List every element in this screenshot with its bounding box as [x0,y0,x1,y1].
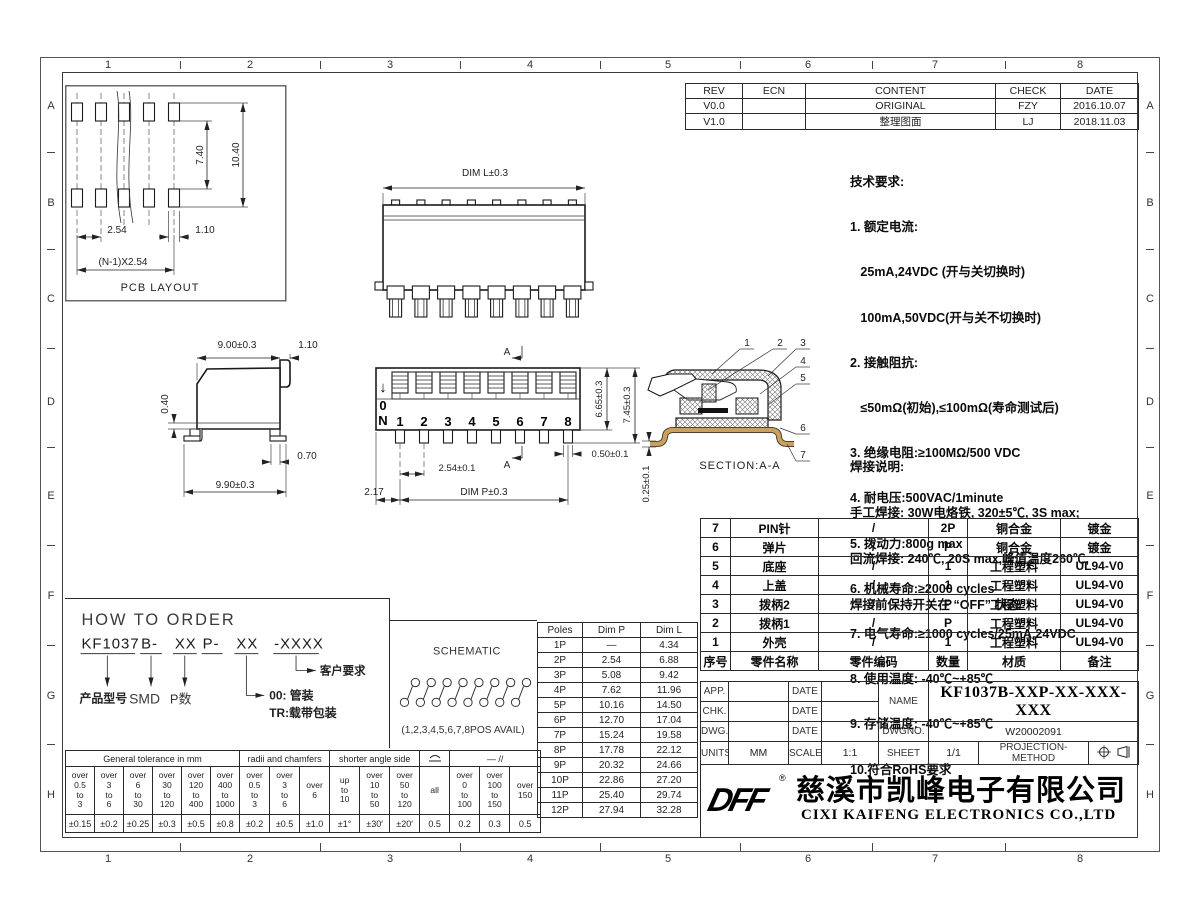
dim-7-45: 7.45±0.3 [622,387,633,424]
zone-row-left: B [44,197,58,209]
poles-cell: 9.42 [641,668,698,683]
table-row: 6弹片/P铜合金镀金 [701,538,1139,557]
front-pins [396,430,573,443]
rev-cell: V0.0 [686,99,743,114]
company-block: DFF ® 慈溪市凯峰电子有限公司 CIXI KAIFENG ELECTRONI… [700,765,1138,838]
how-to-order-title: HOW TO ORDER [81,611,235,629]
flatness-icon [428,753,442,762]
schematic-note: (1,2,3,4,5,6,7,8POS AVAIL) [401,725,524,736]
bom-cell: 3 [701,595,731,614]
zone-tick [320,61,321,69]
zone-row-left: A [44,100,58,112]
bom-cell: 工程塑料 [968,557,1061,576]
dim-9-90: 9.90±0.3 [216,480,255,491]
bom-cell: P [929,595,968,614]
dim-0-40: 0.40 [160,394,171,414]
poles-cell: 20.32 [583,758,641,773]
section-aa-view: 1 2 3 4 5 6 7 0.25±0.1 SECTION:A-A [640,332,860,518]
dim-l-label: DIM L±0.3 [462,168,508,179]
scale-label: SCALE [789,742,822,765]
tol-value: ±30′ [360,815,390,833]
date-label: DATE [789,702,822,722]
section-housing [648,370,781,432]
bom-header: 备注 [1061,652,1139,671]
rev-cell [743,99,806,114]
part-name-value: KF1037B-XXP-XX-XXX-XXX [929,682,1139,722]
schematic-title: SCHEMATIC [433,646,501,658]
zone-col-top: 7 [925,59,945,71]
bom-header: 零件名称 [731,652,819,671]
code-family: KF1037 [81,637,139,653]
tol-range: over 0.5 to 3 [240,767,270,815]
bom-cell: P [929,538,968,557]
bom-header: 序号 [701,652,731,671]
rev-cell: FZY [996,99,1061,114]
poles-header: Dim P [583,623,641,638]
rev-header: ECN [743,84,806,99]
bom-cell: 底座 [731,557,819,576]
poles-cell: 6P [538,713,583,728]
section-label: SECTION:A-A [699,460,780,472]
bom-cell: PIN针 [731,519,819,538]
chk-label: CHK. [701,702,729,722]
rev-header: REV [686,84,743,99]
zone-tick [1146,447,1154,448]
poles-cell: 10P [538,773,583,788]
zone-tick [1146,545,1154,546]
poles-cell: 8P [538,743,583,758]
bom-cell: 拨柄2 [731,595,819,614]
zone-tick [47,447,55,448]
tol-group-parallel: — // [450,751,541,767]
dwg-value [729,722,789,742]
table-row: 9P20.3224.66 [538,758,698,773]
bom-cell: / [819,576,929,595]
sheet-label: SHEET [879,742,929,765]
rev-cell: 整理图面 [806,114,996,130]
label-smd: SMD [129,690,160,706]
date-value [822,722,879,742]
tol-range: over 120 to 400 [182,767,211,815]
zone-col-bottom: 4 [520,853,540,865]
zone-row-right: D [1143,396,1157,408]
tol-value-row: ±0.15 ±0.2 ±0.25 ±0.3 ±0.5 ±0.8 ±0.2 ±0.… [66,815,541,833]
bom-cell: P [929,614,968,633]
dim-2-17: 2.17 [364,487,384,498]
pcb-layout-view: 7.40 10.40 2.54 1.10 (N-1)X2.54 PCB LAYO… [65,85,287,302]
zone-tick [180,843,181,851]
bom-cell: / [819,595,929,614]
zone-col-bottom: 1 [98,853,118,865]
rev-cell: 2016.10.07 [1061,99,1139,114]
svg-text:8: 8 [564,414,571,429]
engineering-drawing-sheet: 1 2 3 4 5 6 7 8 1 2 3 4 5 6 7 8 A B C D … [0,0,1200,910]
zone-col-top: 4 [520,59,540,71]
zone-tick [1005,843,1006,851]
poles-cell: 1P [538,638,583,653]
bom-cell: 1 [701,633,731,652]
bom-cell: 弹片 [731,538,819,557]
zone-row-right: E [1143,490,1157,502]
tech-req-line: 100mA,50VDC(开与关不切换时) [850,310,1142,327]
tech-req-line: 2. 接触阻抗: [850,355,1142,372]
bom-cell: 7 [701,519,731,538]
tol-value: ±0.2 [240,815,270,833]
poles-cell: 17.78 [583,743,641,758]
tol-range: over 50 to 120 [390,767,420,815]
tol-range: over 0 to 100 [450,767,480,815]
projection-symbol-cell [1089,742,1139,765]
bom-cell: 工程塑料 [968,595,1061,614]
rev-header: CHECK [996,84,1061,99]
table-row: 12P27.9432.28 [538,803,698,818]
callout-3: 3 [800,338,806,349]
poles-cell: 29.74 [641,788,698,803]
zone-tick [1005,61,1006,69]
table-row: 4P7.6211.96 [538,683,698,698]
zone-col-bottom: 5 [658,853,678,865]
zone-tick [47,744,55,745]
code-poles: XX [175,637,197,653]
dwgno-value: W20002091 [929,722,1139,742]
tol-value: 0.2 [450,815,480,833]
tech-req-title: 技术要求: [850,174,1142,191]
dim-n-pitch: (N-1)X2.54 [99,257,148,268]
rev-header: CONTENT [806,84,996,99]
svg-text:7: 7 [540,414,547,429]
zone-row-right: B [1143,197,1157,209]
zone-col-bottom: 2 [240,853,260,865]
svg-text:5: 5 [492,414,499,429]
zone-row-left: E [44,490,58,502]
table-row: 7P15.2419.58 [538,728,698,743]
poles-header: Poles [538,623,583,638]
section-mark-bottom: A [504,446,522,471]
tol-range: over 6 [300,767,330,815]
table-row: 7PIN针/2P铜合金镀金 [701,519,1139,538]
scale-value: 1:1 [822,742,879,765]
rear-view: DIM L±0.3 [365,162,640,330]
bom-cell: 工程塑料 [968,614,1061,633]
date-label: DATE [789,682,822,702]
bom-cell: UL94-V0 [1061,557,1139,576]
poles-cell: 2.54 [583,653,641,668]
zone-tick [1146,348,1154,349]
rev-cell [743,114,806,130]
zone-tick [47,348,55,349]
date-value [822,702,879,722]
callout-1: 1 [744,338,750,349]
tol-flatness-symbol-cell [420,751,450,767]
poles-cell: 12P [538,803,583,818]
bom-cell: 外壳 [731,633,819,652]
poles-cell: 7.62 [583,683,641,698]
bom-cell: 铜合金 [968,519,1061,538]
callout-6: 6 [800,423,806,434]
pcb-layout-label: PCB LAYOUT [121,282,200,294]
on-indicator: ↓ 0 N [378,379,387,428]
bom-header: 材质 [968,652,1061,671]
tol-value: 0.5 [510,815,541,833]
zone-tick [320,843,321,851]
zone-tick [872,61,873,69]
dim-0-70: 0.70 [297,451,317,462]
bom-cell: 拨柄1 [731,614,819,633]
table-row: 2拨柄1/P工程塑料UL94-V0 [701,614,1139,633]
bom-cell: 4 [701,576,731,595]
code-p: P- [203,637,220,653]
dim-6-65: 6.65±0.3 [594,381,605,418]
company-name-cn: 慈溪市凯峰电子有限公司 [796,767,1136,809]
label-customer: 客户要求 [319,663,366,677]
dim-9-00: 9.00±0.3 [218,340,257,351]
tol-range: over 100 to 150 [480,767,510,815]
rev-cell: LJ [996,114,1061,130]
poles-cell: 19.58 [641,728,698,743]
bom-header: 数量 [929,652,968,671]
poles-cell: 10.16 [583,698,641,713]
zone-col-top: 8 [1070,59,1090,71]
dim-10-40: 10.40 [231,142,242,167]
zone-row-right: F [1143,590,1157,602]
tol-range: over 3 to 6 [95,767,124,815]
zone-row-left: D [44,396,58,408]
tol-range: up to 10 [330,767,360,815]
poles-cell: 6.88 [641,653,698,668]
how-to-order: HOW TO ORDER KF1037 B- XX P- XX -XXXX 产品… [65,598,390,748]
bom-cell: / [819,614,929,633]
tol-range: over 400 to 1000 [211,767,240,815]
tol-value: ±0.5 [182,815,211,833]
svg-text:6: 6 [516,414,523,429]
schematic-panel: SCHEMATIC (1,2,3,4,5,6,7,8POS AVAIL) [390,620,537,748]
dwg-label: DWG. [701,722,729,742]
name-label: NAME [879,682,929,722]
table-row: 2P2.546.88 [538,653,698,668]
zone-tick [1146,645,1154,646]
bom-cell: 2P [929,519,968,538]
table-row: 10P22.8627.20 [538,773,698,788]
bom-table: 7PIN针/2P铜合金镀金 6弹片/P铜合金镀金 5底座/1工程塑料UL94-V… [700,518,1139,671]
table-row: V1.0 整理图面 LJ 2018.11.03 [686,114,1139,130]
bom-cell: UL94-V0 [1061,576,1139,595]
zone-col-top: 3 [380,59,400,71]
poles-cell: 5.08 [583,668,641,683]
zone-tick [460,61,461,69]
poles-cell: 15.24 [583,728,641,743]
zone-tick [740,61,741,69]
zone-row-left: F [44,590,58,602]
rev-cell: ORIGINAL [806,99,996,114]
tol-group-general: General tolerance in mm [66,751,240,767]
company-name-en: CIXI KAIFENG ELECTRONICS CO.,LTD [801,807,1136,824]
section-mark-top: A [504,346,522,358]
projection-label: PROJECTION-METHOD [979,742,1089,765]
tol-value: ±1.0 [300,815,330,833]
dim-7-40: 7.40 [195,145,206,165]
tol-value: ±20′ [390,815,420,833]
code-packing: XX [236,637,258,653]
table-row: 5P10.1614.50 [538,698,698,713]
bom-header: 零件编码 [819,652,929,671]
date-label: DATE [789,722,822,742]
zone-row-left: G [44,690,58,702]
units-value: MM [729,742,789,765]
poles-cell: 22.12 [641,743,698,758]
poles-dimension-table: Poles Dim P Dim L 1P—4.34 2P2.546.88 3P5… [537,622,698,818]
poles-cell: 32.28 [641,803,698,818]
poles-cell: 4P [538,683,583,698]
code-smd: B- [141,637,158,653]
zone-row-right: C [1143,293,1157,305]
zone-col-bottom: 7 [925,853,945,865]
tolerance-table: General tolerance in mm radii and chamfe… [65,750,541,833]
bom-header-row: 序号零件名称零件编码数量材质备注 [701,652,1139,671]
bom-cell: 工程塑料 [968,576,1061,595]
poles-cell: — [583,638,641,653]
poles-cell: 27.20 [641,773,698,788]
bom-cell: 上盖 [731,576,819,595]
poles-cell: 2P [538,653,583,668]
tol-value: ±0.2 [95,815,124,833]
poles-cell: 12.70 [583,713,641,728]
section-callouts: 1 2 3 4 5 6 7 [708,338,810,461]
tol-range-row: over 0.5 to 3 over 3 to 6 over 6 to 30 o… [66,767,541,815]
label-tube: 00: 管装 [269,688,313,702]
on-n: N [378,413,387,428]
callout-2: 2 [777,338,783,349]
zone-row-left: H [44,789,58,801]
zone-tick [600,61,601,69]
label-pcount: P数 [170,691,192,706]
sheet-value: 1/1 [929,742,979,765]
tol-group-angle: shorter angle side [330,751,420,767]
label-model: 产品型号 [79,691,127,705]
zone-col-top: 1 [98,59,118,71]
tol-value: 0.5 [420,815,450,833]
zone-tick [1146,744,1154,745]
poles-cell: 27.94 [583,803,641,818]
bom-cell: 镀金 [1061,519,1139,538]
section-letter: A [504,347,511,358]
tol-range: all [420,767,450,815]
poles-cell: 22.86 [583,773,641,788]
tech-req-line: 1. 额定电流: [850,219,1142,236]
zone-tick [740,843,741,851]
section-letter: A [504,460,511,471]
bom-cell: 1 [929,576,968,595]
units-label: UNITS [701,742,729,765]
dwgno-label: DWGNO. [879,722,929,742]
bom-cell: 镀金 [1061,538,1139,557]
bom-cell: / [819,557,929,576]
tol-range: over 150 [510,767,541,815]
company-logo: DFF [704,781,769,819]
tol-range: over 3 to 6 [270,767,300,815]
label-tape: TR:载带包装 [269,706,337,720]
tol-group-radii: radii and chamfers [240,751,330,767]
title-block: APP. DATE NAME KF1037B-XXP-XX-XXX-XXX CH… [700,681,1139,765]
table-row: 5底座/1工程塑料UL94-V0 [701,557,1139,576]
side-view: 9.00±0.3 1.10 0.40 0.70 9.90±0.3 [160,332,360,515]
svg-text:2: 2 [420,414,427,429]
bom-cell: 5 [701,557,731,576]
app-label: APP. [701,682,729,702]
date-value [822,682,879,702]
table-row: 3拨柄2/P工程塑料UL94-V0 [701,595,1139,614]
solder-title: 焊接说明: [850,458,1142,476]
bom-cell: UL94-V0 [1061,633,1139,652]
on-zero: 0 [379,398,386,413]
code-custom: -XXXX [274,637,324,653]
bom-cell: / [819,519,929,538]
tol-range: over 6 to 30 [124,767,153,815]
poles-cell: 25.40 [583,788,641,803]
zone-row-right: H [1143,789,1157,801]
zone-row-left: C [44,293,58,305]
table-row: 1外壳/1工程塑料UL94-V0 [701,633,1139,652]
zone-row-right: G [1143,690,1157,702]
zone-tick [872,843,873,851]
bom-cell: 1 [929,633,968,652]
dim-0-50: 0.50±0.1 [592,449,629,460]
zone-tick [600,843,601,851]
tol-range: over 0.5 to 3 [66,767,95,815]
section-pin [650,430,794,444]
bom-cell: UL94-V0 [1061,595,1139,614]
svg-text:3: 3 [444,414,451,429]
poles-cell: 11.96 [641,683,698,698]
bom-cell: 工程塑料 [968,633,1061,652]
table-row: V0.0 ORIGINAL FZY 2016.10.07 [686,99,1139,114]
bom-cell: 铜合金 [968,538,1061,557]
pcb-pads [72,91,180,242]
zone-row-right: A [1143,100,1157,112]
svg-text:1: 1 [396,414,403,429]
zone-tick [47,545,55,546]
zone-col-top: 2 [240,59,260,71]
tol-range: over 30 to 120 [153,767,182,815]
side-body [184,360,290,441]
bom-cell: / [819,633,929,652]
poles-cell: 4.34 [641,638,698,653]
callout-4: 4 [800,356,806,367]
order-code: KF1037 B- XX P- XX -XXXX [81,637,323,653]
on-arrow-icon: ↓ [379,379,387,396]
rev-cell: 2018.11.03 [1061,114,1139,130]
tech-req-line: 25mA,24VDC (开与关切换时) [850,264,1142,281]
tol-value: ±0.8 [211,815,240,833]
rev-cell: V1.0 [686,114,743,130]
dim-1-10-side: 1.10 [298,340,318,351]
rear-body [375,200,593,290]
table-row: 6P12.7017.04 [538,713,698,728]
registered-mark: ® [779,773,786,783]
zone-col-top: 6 [798,59,818,71]
table-row: 11P25.4029.74 [538,788,698,803]
zone-col-bottom: 6 [798,853,818,865]
zone-col-bottom: 8 [1070,853,1090,865]
zone-tick [47,152,55,153]
table-row: 4上盖/1工程塑料UL94-V0 [701,576,1139,595]
zone-tick [1146,249,1154,250]
bom-cell: 6 [701,538,731,557]
zone-tick [47,249,55,250]
chk-value [729,702,789,722]
callout-7: 7 [800,450,806,461]
zone-tick [47,645,55,646]
poles-cell: 11P [538,788,583,803]
